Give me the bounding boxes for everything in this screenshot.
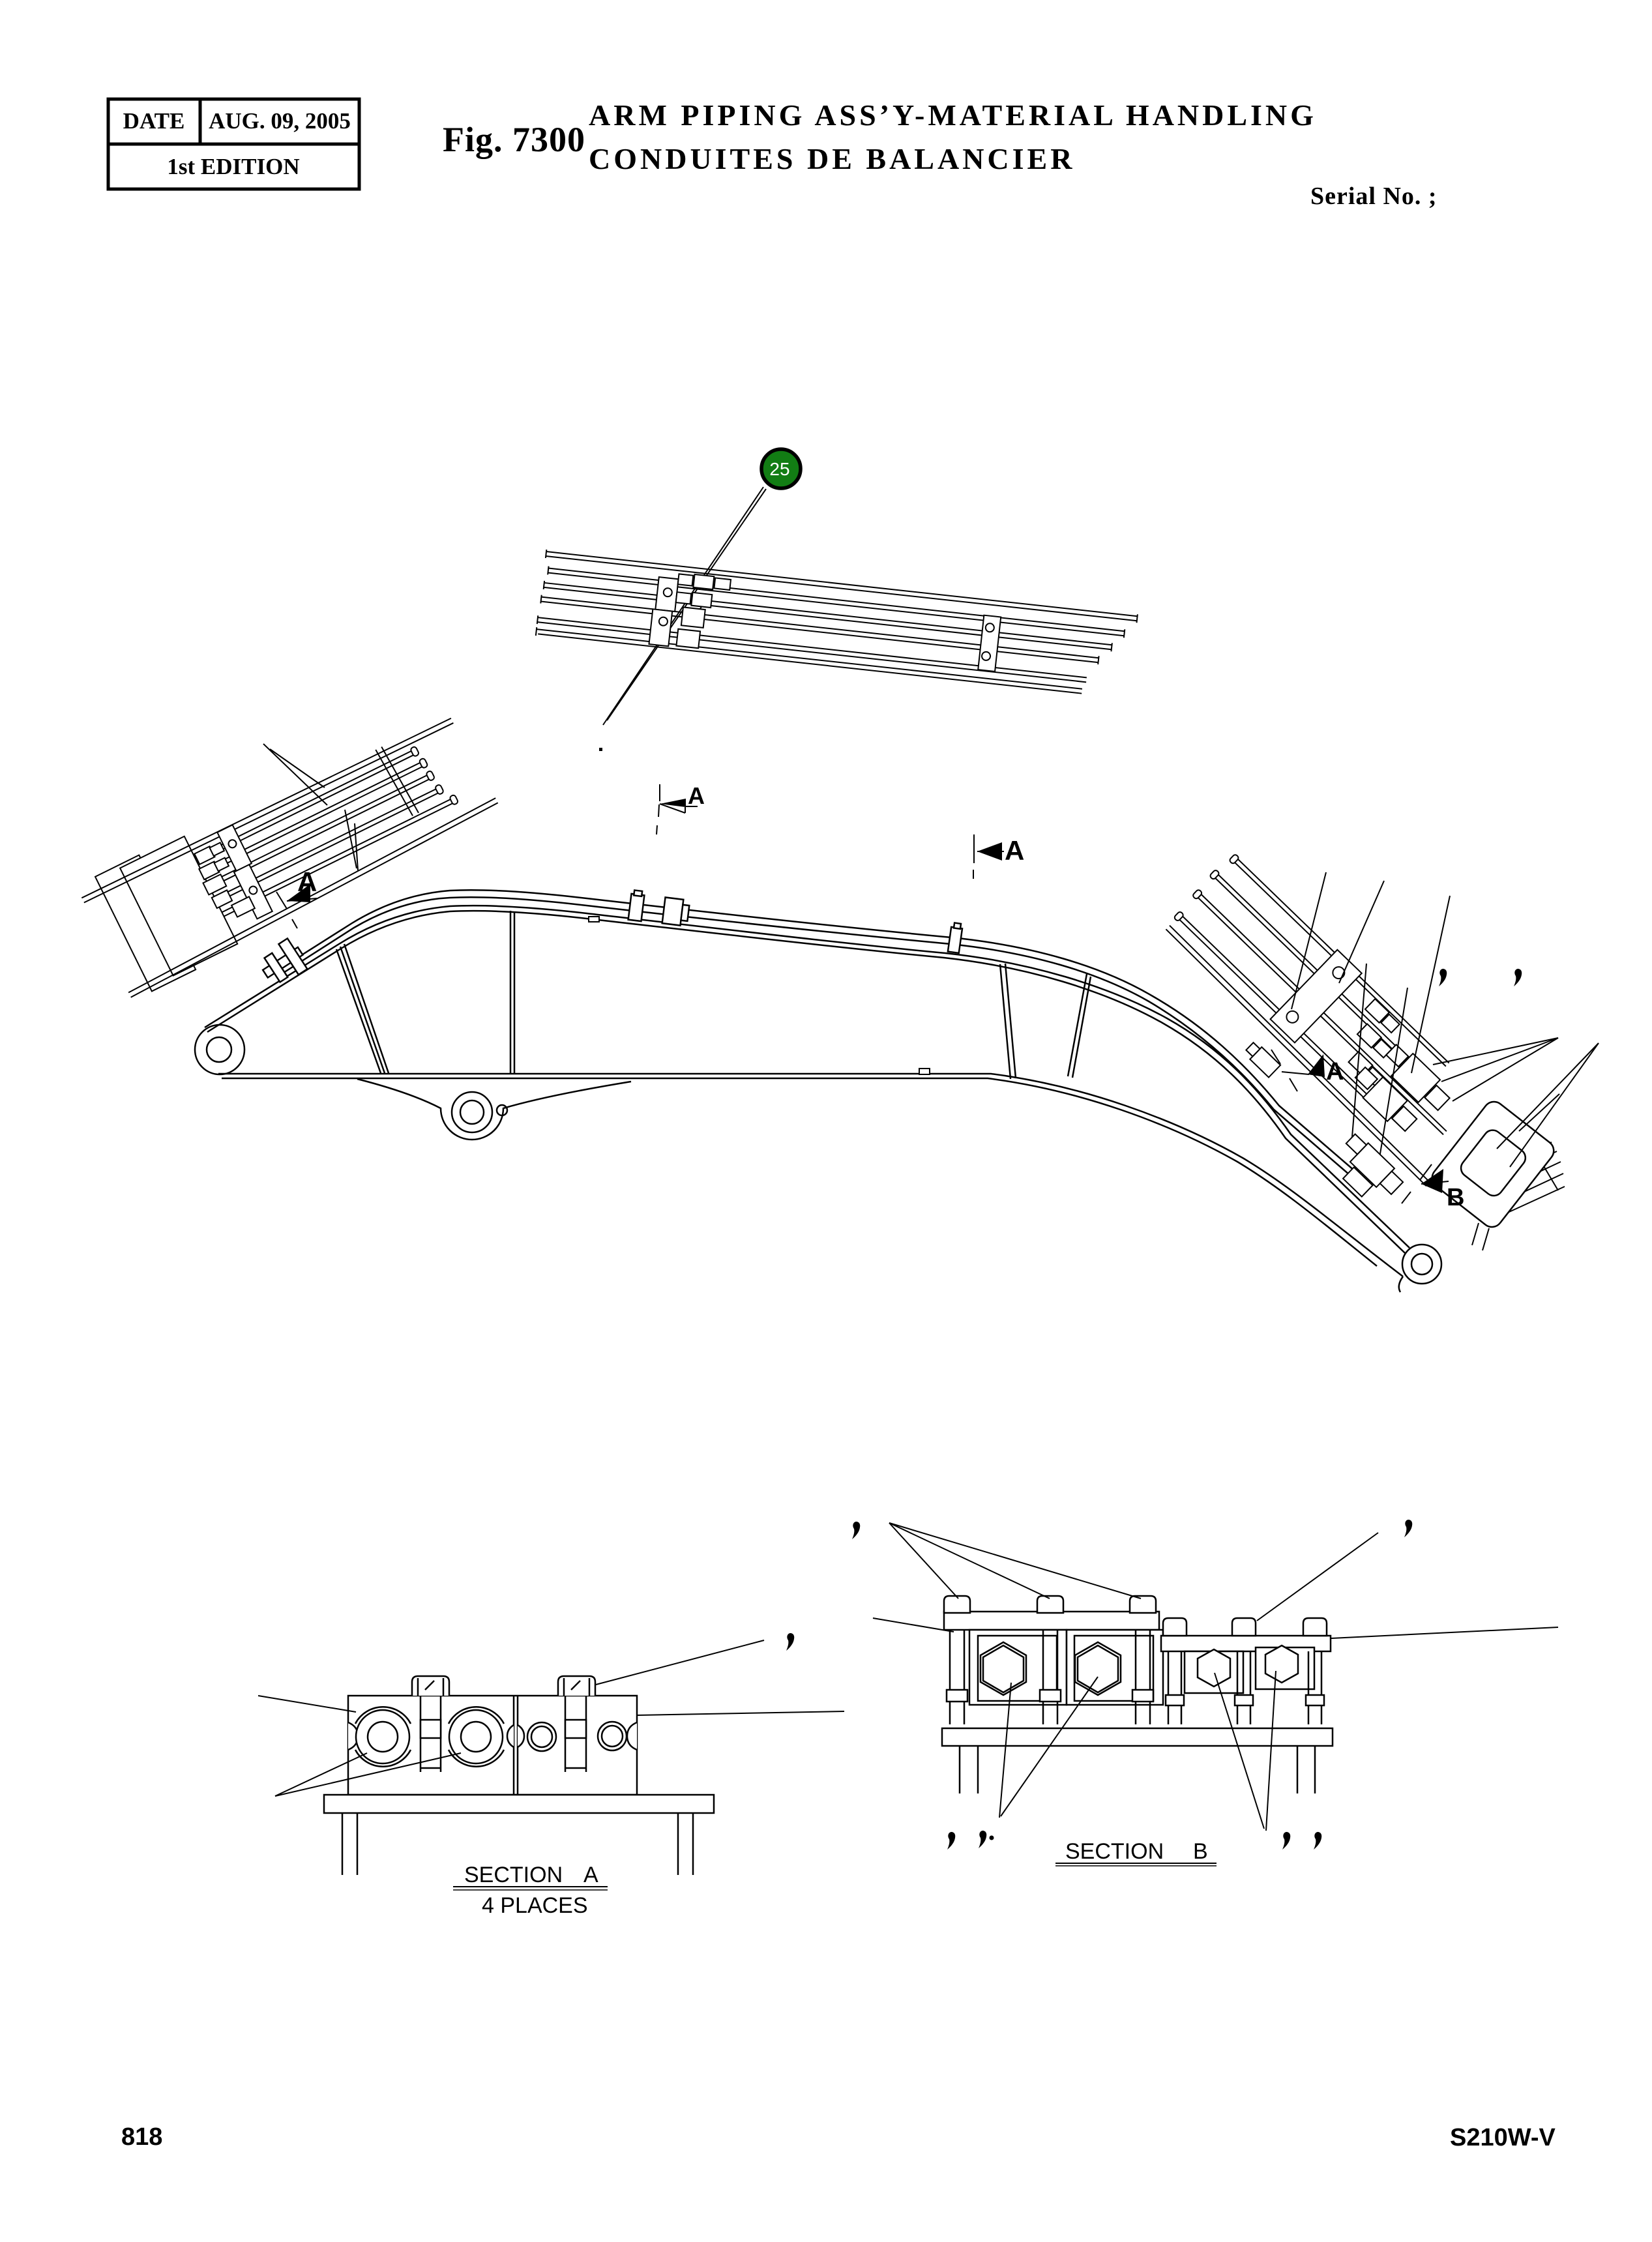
svg-text:A: A <box>583 1863 598 1887</box>
svg-text:1st EDITION: 1st EDITION <box>167 154 299 179</box>
svg-text:A: A <box>688 782 705 809</box>
svg-text:SECTION: SECTION <box>1065 1839 1164 1864</box>
svg-text:DATE: DATE <box>123 108 185 134</box>
svg-text:818: 818 <box>121 2123 162 2151</box>
svg-text:A: A <box>1005 835 1024 866</box>
svg-text:A: A <box>1326 1058 1344 1085</box>
svg-text:SECTION: SECTION <box>464 1863 563 1887</box>
svg-text:4 PLACES: 4 PLACES <box>482 1893 588 1918</box>
svg-text:Fig. 7300: Fig. 7300 <box>443 120 585 159</box>
svg-text:25: 25 <box>769 459 789 479</box>
svg-text:B: B <box>1193 1839 1208 1864</box>
svg-text:ARM PIPING ASS’Y-MATERIAL HAND: ARM PIPING ASS’Y-MATERIAL HANDLING <box>589 98 1317 132</box>
svg-text:S210W-V: S210W-V <box>1450 2124 1556 2151</box>
svg-text:B: B <box>1447 1184 1464 1211</box>
svg-text:AUG. 09, 2005: AUG. 09, 2005 <box>209 108 351 134</box>
svg-text:CONDUITES DE BALANCIER: CONDUITES DE BALANCIER <box>589 142 1075 175</box>
svg-text:Serial No. ;: Serial No. ; <box>1310 183 1438 210</box>
